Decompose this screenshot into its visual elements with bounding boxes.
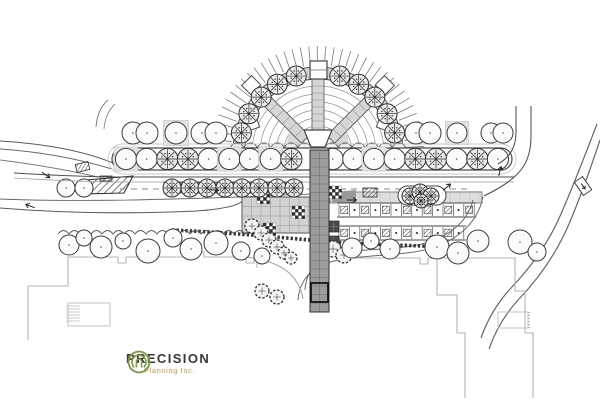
- circle-mark: [360, 89, 361, 90]
- tree-symbol: [414, 194, 428, 208]
- circle-mark: [433, 164, 434, 165]
- circle-mark: [429, 132, 431, 134]
- concentric-rings-icon: [126, 349, 152, 375]
- circle-mark: [334, 73, 335, 74]
- circle-mark: [182, 156, 183, 157]
- checker-accent-tile: [329, 186, 342, 199]
- logo-middle-arc: [132, 355, 146, 367]
- circle-mark: [430, 161, 431, 162]
- circle-mark: [222, 183, 223, 184]
- circle-mark: [169, 192, 170, 193]
- circle-mark: [288, 164, 289, 165]
- circle-mark: [391, 115, 392, 116]
- tree-symbol: [447, 242, 469, 264]
- circle-mark: [272, 82, 273, 83]
- rect-mark: [292, 209, 295, 212]
- tree-symbol: [177, 148, 198, 169]
- circle-mark: [290, 73, 291, 74]
- tree-symbol: [446, 148, 467, 169]
- road-edge: [0, 141, 113, 163]
- stall-dot: [374, 209, 376, 211]
- circle-mark: [293, 80, 294, 81]
- stall-dot: [416, 232, 418, 234]
- tree-symbol: [365, 87, 385, 107]
- circle-mark: [417, 202, 418, 203]
- fan-tick: [370, 67, 381, 82]
- circle-mark: [260, 183, 261, 184]
- circle-mark: [369, 99, 370, 100]
- circle-mark: [146, 158, 148, 160]
- circle-mark: [208, 183, 209, 184]
- circle-mark: [415, 132, 417, 134]
- tree-symbol: [286, 66, 306, 86]
- rect-mark: [339, 196, 342, 199]
- rect-mark: [269, 226, 272, 229]
- circle-mark: [351, 247, 353, 249]
- circle-mark: [405, 197, 406, 198]
- shrub-symbol: [285, 252, 297, 264]
- circle-mark: [243, 115, 244, 116]
- circle-mark: [169, 183, 170, 184]
- fan-tick: [364, 62, 374, 78]
- circle-mark: [389, 248, 391, 250]
- circle-mark: [253, 115, 254, 116]
- tree-symbol: [405, 148, 426, 169]
- tree-symbol: [380, 239, 400, 259]
- fan-tick: [276, 55, 284, 72]
- tree-symbol: [239, 148, 260, 169]
- circle-mark: [281, 189, 282, 190]
- circle-mark: [204, 192, 205, 193]
- stall-hatch-square: [341, 229, 348, 236]
- dark-paver-tile: [328, 221, 339, 232]
- tree-symbol: [231, 123, 251, 143]
- circle-mark: [482, 156, 483, 157]
- rect-mark: [263, 201, 266, 204]
- circle-mark: [477, 240, 479, 242]
- circle-mark: [246, 189, 247, 190]
- circle-mark: [239, 183, 240, 184]
- rect-mark: [339, 189, 342, 192]
- tree-symbol: [342, 238, 362, 258]
- tree-symbol: [204, 231, 228, 255]
- circle-mark: [260, 192, 261, 193]
- circle-mark: [243, 127, 244, 128]
- circle-mark: [172, 156, 173, 157]
- road-edge: [0, 200, 243, 213]
- circle-mark: [298, 185, 299, 186]
- site-plan-svg: [0, 0, 600, 400]
- circle-mark: [434, 197, 435, 198]
- circle-mark: [263, 189, 264, 190]
- circle-mark: [146, 132, 148, 134]
- rect-mark: [260, 197, 263, 200]
- fan-tick: [268, 58, 277, 75]
- circle-mark: [411, 199, 412, 200]
- tree-symbol: [57, 179, 75, 197]
- circle-mark: [238, 127, 239, 128]
- circle-mark: [334, 78, 335, 79]
- circle-mark: [426, 194, 427, 195]
- rect-mark: [263, 223, 266, 226]
- circle-mark: [266, 94, 267, 95]
- circle-mark: [360, 78, 361, 79]
- circle-mark: [261, 255, 263, 257]
- stall-dot: [458, 209, 460, 211]
- stall-hatch-square: [424, 229, 431, 236]
- tree-symbol: [76, 230, 92, 246]
- circle-mark: [125, 158, 127, 160]
- circle-mark: [250, 118, 251, 119]
- circle-mark: [236, 130, 237, 131]
- rect-mark: [260, 201, 263, 204]
- stall-hatch-square: [445, 206, 452, 213]
- rect-mark: [332, 196, 335, 199]
- fan-tick: [231, 92, 247, 103]
- circle-mark: [379, 94, 380, 95]
- tree-symbol: [425, 235, 449, 259]
- circle-mark: [456, 132, 458, 134]
- tree-symbol: [217, 147, 241, 171]
- circle-mark: [376, 91, 377, 92]
- circle-mark: [282, 81, 283, 82]
- rect-mark: [269, 223, 272, 226]
- circle-mark: [479, 153, 480, 154]
- rect-mark: [298, 216, 301, 219]
- circle-mark: [167, 185, 168, 186]
- tree-symbol: [164, 121, 189, 146]
- fan-tick: [396, 106, 413, 114]
- circle-mark: [246, 118, 247, 119]
- circle-mark: [278, 183, 279, 184]
- circle-mark: [298, 189, 299, 190]
- circle-mark: [417, 164, 418, 165]
- circle-mark: [337, 80, 338, 81]
- tree-symbol: [385, 123, 405, 143]
- fan-axis-spoke: [312, 79, 324, 130]
- circle-mark: [436, 246, 438, 248]
- street-tree-row: [163, 179, 303, 197]
- circle-mark: [381, 115, 382, 116]
- rect-mark: [273, 223, 276, 226]
- circle-mark: [353, 82, 354, 83]
- tree-symbol: [233, 179, 251, 197]
- circle-mark: [432, 199, 433, 200]
- circle-mark: [369, 94, 370, 95]
- circle-mark: [279, 78, 280, 79]
- tree-symbol: [281, 148, 302, 169]
- circle-mark: [519, 241, 521, 243]
- circle-mark: [185, 185, 186, 186]
- circle-mark: [438, 164, 439, 165]
- circle-mark: [379, 98, 380, 99]
- tree-symbol: [250, 179, 268, 197]
- circle-mark: [274, 192, 275, 193]
- parking-rows: [337, 203, 476, 240]
- circle-mark: [441, 156, 442, 157]
- circle-mark: [456, 158, 458, 160]
- tree-symbol: [363, 233, 379, 249]
- circle-mark: [253, 111, 254, 112]
- tree-symbol: [268, 179, 286, 197]
- circle-mark: [194, 189, 195, 190]
- tree-symbol: [267, 74, 287, 94]
- circle-mark: [169, 164, 170, 165]
- circle-mark: [422, 204, 423, 205]
- rect-mark: [273, 229, 276, 232]
- circle-mark: [220, 189, 221, 190]
- rect-mark: [267, 194, 270, 197]
- circle-mark: [285, 161, 286, 162]
- circle-mark: [381, 111, 382, 112]
- rect-mark: [335, 186, 338, 189]
- circle-mark: [471, 156, 472, 157]
- circle-mark: [419, 204, 420, 205]
- stall-hatch-square: [362, 206, 369, 213]
- logo-tagline: Planning Inc.: [144, 367, 210, 375]
- circle-mark: [240, 250, 242, 252]
- circle-mark: [246, 108, 247, 109]
- circle-mark: [432, 191, 433, 192]
- rect-mark: [295, 209, 298, 212]
- circle-mark: [376, 101, 377, 102]
- scattered-trees: [59, 229, 546, 264]
- rect-mark: [339, 186, 342, 189]
- circle-mark: [274, 79, 275, 80]
- circle-mark: [176, 185, 177, 186]
- rect-mark: [257, 201, 260, 204]
- circle-mark: [263, 185, 264, 186]
- circle-mark: [254, 185, 255, 186]
- circle-mark: [202, 189, 203, 190]
- circle-mark: [288, 153, 289, 154]
- tree-symbol: [377, 104, 397, 124]
- fan-tick: [399, 113, 417, 120]
- circle-mark: [372, 102, 373, 103]
- rect-mark: [295, 216, 298, 219]
- circle-mark: [396, 137, 397, 138]
- tree-symbol: [330, 66, 350, 86]
- circle-mark: [388, 108, 389, 109]
- circle-mark: [226, 183, 227, 184]
- circle-mark: [419, 197, 420, 198]
- circle-mark: [291, 192, 292, 193]
- rect-mark: [295, 212, 298, 215]
- fan-tick: [226, 99, 242, 108]
- circle-mark: [243, 183, 244, 184]
- circle-mark: [176, 189, 177, 190]
- circle-mark: [392, 127, 393, 128]
- circle-mark: [353, 86, 354, 87]
- tree-symbol: [136, 122, 158, 144]
- circle-mark: [409, 156, 410, 157]
- rect-mark: [292, 212, 295, 215]
- circle-mark: [208, 192, 209, 193]
- circle-mark: [263, 91, 264, 92]
- circle-mark: [290, 78, 291, 79]
- circle-mark: [433, 153, 434, 154]
- rect-mark: [295, 206, 298, 209]
- road-stub: [104, 104, 115, 129]
- stall-dot: [437, 209, 439, 211]
- tree-symbol: [285, 179, 303, 197]
- circle-mark: [208, 158, 210, 160]
- fan-tick: [405, 146, 424, 147]
- circle-mark: [266, 98, 267, 99]
- building-room: [68, 303, 110, 326]
- circle-mark: [389, 118, 390, 119]
- circle-mark: [147, 250, 149, 252]
- building-outline-right-steps: [437, 260, 465, 398]
- fan-tick: [331, 47, 334, 66]
- circle-mark: [417, 199, 418, 200]
- road-edge: [0, 149, 112, 169]
- circle-mark: [250, 108, 251, 109]
- circle-mark: [243, 192, 244, 193]
- circle-mark: [187, 183, 188, 184]
- circle-mark: [255, 94, 256, 95]
- fan-tick: [338, 49, 342, 67]
- circle-mark: [193, 156, 194, 157]
- circle-mark: [285, 156, 286, 157]
- circle-mark: [246, 130, 247, 131]
- circle-mark: [429, 199, 430, 200]
- fan-tick: [261, 63, 271, 79]
- rect-mark: [332, 189, 335, 192]
- circle-mark: [289, 189, 290, 190]
- circle-mark: [161, 156, 162, 157]
- circle-mark: [256, 183, 257, 184]
- circle-mark: [430, 156, 431, 157]
- fan-tick: [284, 52, 290, 70]
- stall-dot: [354, 209, 356, 211]
- tree-symbol: [446, 122, 469, 145]
- circle-mark: [256, 192, 257, 193]
- road-edge: [0, 197, 240, 200]
- fan-tick: [393, 98, 409, 108]
- circle-mark: [479, 164, 480, 165]
- circle-mark: [396, 127, 397, 128]
- rect-mark: [298, 212, 301, 215]
- circle-mark: [341, 80, 342, 81]
- rect-mark: [269, 229, 272, 232]
- circle-mark: [415, 193, 416, 194]
- tree-symbol: [493, 123, 513, 143]
- circle-mark: [490, 132, 492, 134]
- crosswalk-mark: [100, 176, 112, 181]
- circle-mark: [122, 240, 124, 242]
- path-mark: [25, 202, 36, 210]
- circle-mark: [191, 183, 192, 184]
- tree-symbol: [239, 104, 259, 124]
- circle-mark: [474, 153, 475, 154]
- fan-tick: [358, 58, 367, 75]
- stall-dot: [395, 209, 397, 211]
- circle-mark: [341, 70, 342, 71]
- circle-mark: [172, 237, 174, 239]
- circle-mark: [422, 197, 423, 198]
- rect-mark: [332, 192, 335, 195]
- circle-mark: [187, 192, 188, 193]
- circle-mark: [255, 99, 256, 100]
- circle-mark: [482, 160, 483, 161]
- shrub-symbol: [270, 290, 284, 304]
- rect-mark: [302, 212, 305, 215]
- circle-mark: [191, 192, 192, 193]
- traffic-arrow: [25, 202, 36, 210]
- circle-mark: [279, 89, 280, 90]
- tree-symbol: [115, 233, 131, 249]
- tree-symbol: [467, 230, 489, 252]
- circle-mark: [172, 160, 173, 161]
- circle-mark: [270, 158, 272, 160]
- circle-mark: [370, 240, 372, 242]
- circle-mark: [175, 132, 177, 134]
- circle-mark: [372, 91, 373, 92]
- circle-mark: [229, 189, 230, 190]
- tree-symbol: [362, 147, 386, 171]
- circle-mark: [169, 153, 170, 154]
- circle-mark: [298, 80, 299, 81]
- stall-hatch-square: [341, 206, 348, 213]
- circle-mark: [164, 153, 165, 154]
- circle-mark: [471, 161, 472, 162]
- circle-mark: [332, 158, 334, 160]
- rect-mark: [273, 226, 276, 229]
- tree-symbol: [251, 87, 271, 107]
- crosswalk-mark: [363, 188, 377, 197]
- tree-symbol: [467, 148, 488, 169]
- circle-mark: [194, 185, 195, 186]
- parking-planting-island: [398, 184, 446, 208]
- circle-mark: [201, 132, 203, 134]
- circle-mark: [293, 153, 294, 154]
- circle-mark: [394, 158, 396, 160]
- circle-mark: [373, 158, 375, 160]
- circle-mark: [399, 134, 400, 135]
- circle-mark: [415, 190, 416, 191]
- circle-mark: [246, 134, 247, 135]
- tree-symbol: [90, 236, 112, 258]
- circle-mark: [418, 187, 419, 188]
- stall-dot: [416, 209, 418, 211]
- circle-mark: [408, 191, 409, 192]
- checker-accent-tile: [292, 206, 305, 219]
- circle-mark: [295, 192, 296, 193]
- circle-mark: [420, 156, 421, 157]
- circle-mark: [236, 134, 237, 135]
- circle-mark: [68, 244, 70, 246]
- circle-mark: [215, 132, 217, 134]
- circle-mark: [173, 192, 174, 193]
- tree-symbol: [198, 148, 219, 169]
- circle-mark: [363, 81, 364, 82]
- stall-hatch-square: [382, 206, 389, 213]
- circle-mark: [173, 183, 174, 184]
- circle-mark: [363, 86, 364, 87]
- circle-mark: [83, 237, 85, 239]
- circle-mark: [161, 161, 162, 162]
- circle-mark: [409, 161, 410, 162]
- circle-mark: [405, 194, 406, 195]
- circle-mark: [164, 164, 165, 165]
- tree-symbol: [259, 147, 283, 171]
- rect-mark: [257, 197, 260, 200]
- circle-mark: [293, 70, 294, 71]
- rect-mark: [292, 216, 295, 219]
- fan-tick: [389, 91, 405, 102]
- tree-symbol: [254, 248, 270, 264]
